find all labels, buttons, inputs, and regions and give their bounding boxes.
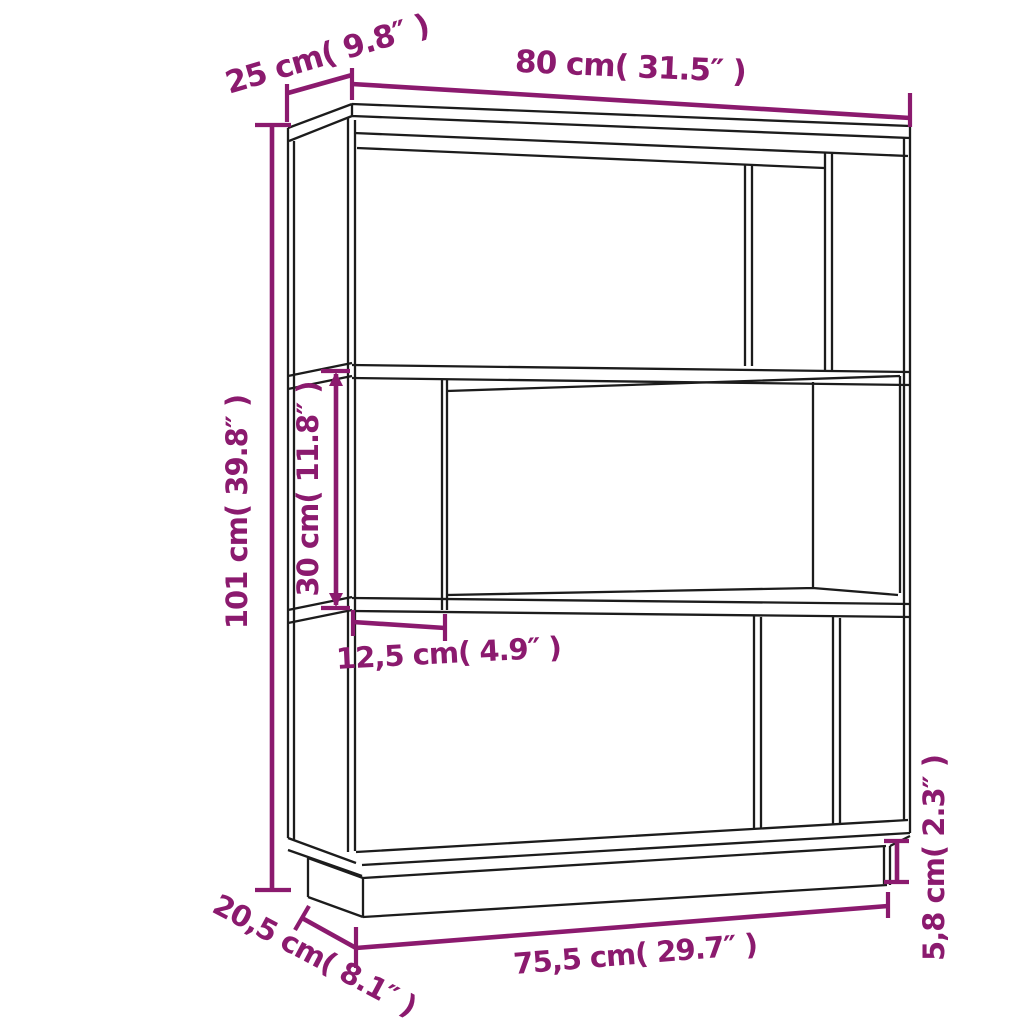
dimension-diagram-page: 25 cm( 9.8″ ) 80 cm( 31.5″ ) 101 cm( 39.… [0, 0, 1024, 1024]
bottom-tier-partitions [754, 616, 840, 829]
plinth-base [308, 836, 910, 917]
dim-total-height [255, 125, 291, 890]
dim-top-width-line [352, 84, 910, 118]
dim-label-top-width: 80 cm( 31.5″ ) [514, 44, 746, 90]
cabinet-outline-drawing [288, 104, 910, 917]
dim-compartment-height [321, 371, 350, 608]
bottom-board [356, 820, 910, 865]
dim-label-compartment-height: 30 cm( 11.8″ ) [291, 381, 325, 596]
furniture-dimension-diagram: 25 cm( 9.8″ ) 80 cm( 31.5″ ) 101 cm( 39.… [0, 0, 1024, 1024]
dimension-annotations: 25 cm( 9.8″ ) 80 cm( 31.5″ ) 101 cm( 39.… [207, 7, 951, 1023]
shelf-boards [352, 365, 910, 617]
dim-label-divider-width: 12,5 cm( 4.9″ ) [335, 630, 562, 676]
dim-label-total-height: 101 cm( 39.8″ ) [220, 395, 254, 629]
dim-label-base-width: 75,5 cm( 29.7″ ) [512, 927, 758, 981]
middle-tier-divider [442, 376, 900, 610]
top-tier-partitions [745, 153, 832, 372]
dim-plinth-height [884, 841, 909, 882]
dim-label-plinth-height: 5,8 cm( 2.3″ ) [917, 755, 951, 961]
front-left-edge [348, 118, 355, 852]
front-right-edge [904, 126, 910, 833]
dim-divider-width-line [353, 622, 445, 628]
dim-label-base-depth: 20,5 cm( 8.1″ ) [207, 887, 422, 1023]
